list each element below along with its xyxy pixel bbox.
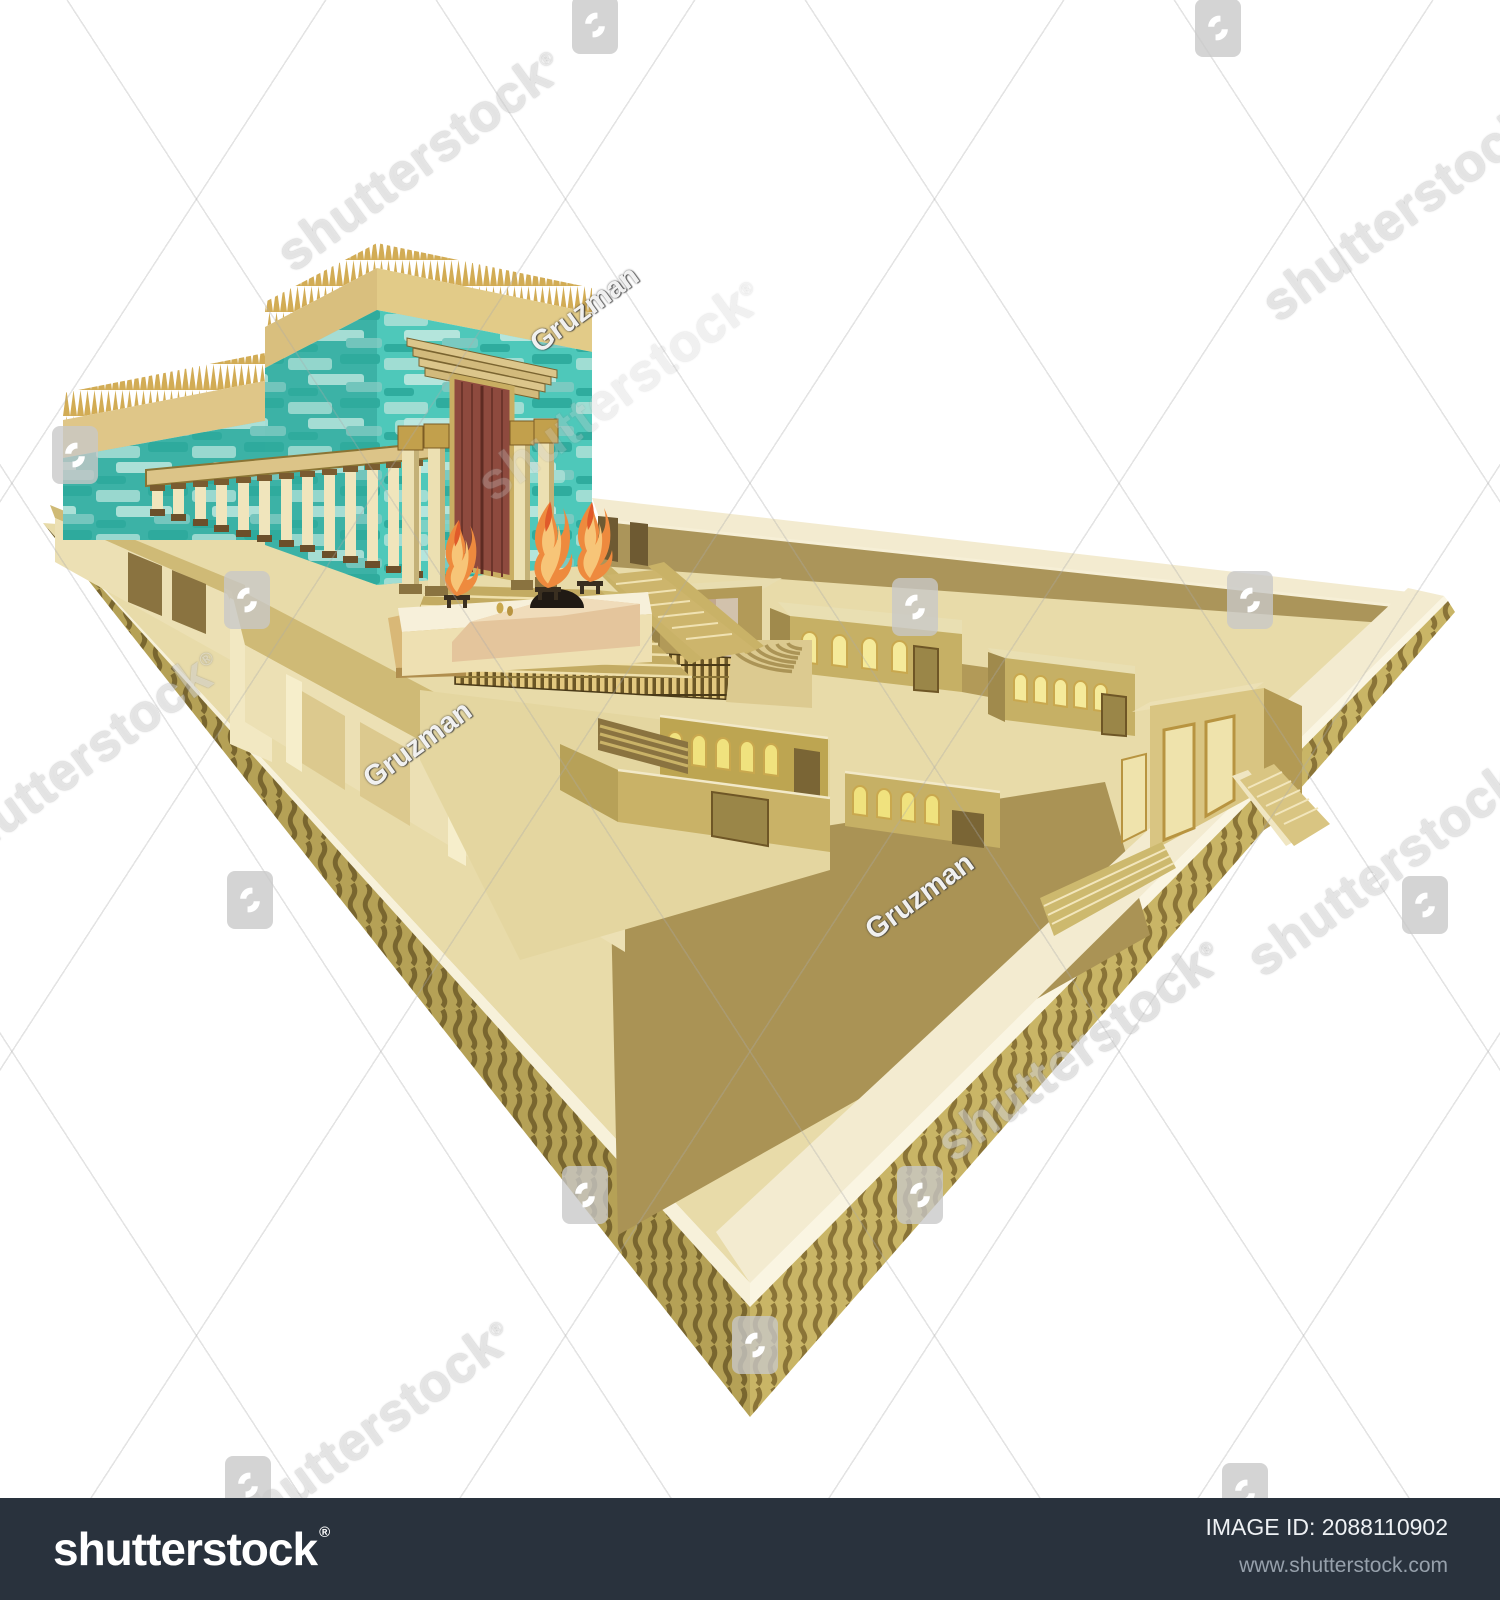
gold-vessel [507,606,513,616]
shutterstock-logo-text: shutterstock [53,1523,317,1575]
temple-illustration [0,0,1500,1600]
website-url: www.shutterstock.com [1206,1554,1449,1578]
footer-bar: shutterstock® IMAGE ID: 2088110902 www.s… [0,1498,1500,1600]
image-id: IMAGE ID: 2088110902 [1206,1514,1449,1541]
stock-image-preview: shutterstock®shutterstock®shutterstock®s… [0,0,1500,1600]
registered-mark: ® [319,1524,329,1541]
shutterstock-logo: shutterstock® [53,1522,329,1576]
wall-door [630,522,648,566]
gold-vessel [497,603,504,614]
